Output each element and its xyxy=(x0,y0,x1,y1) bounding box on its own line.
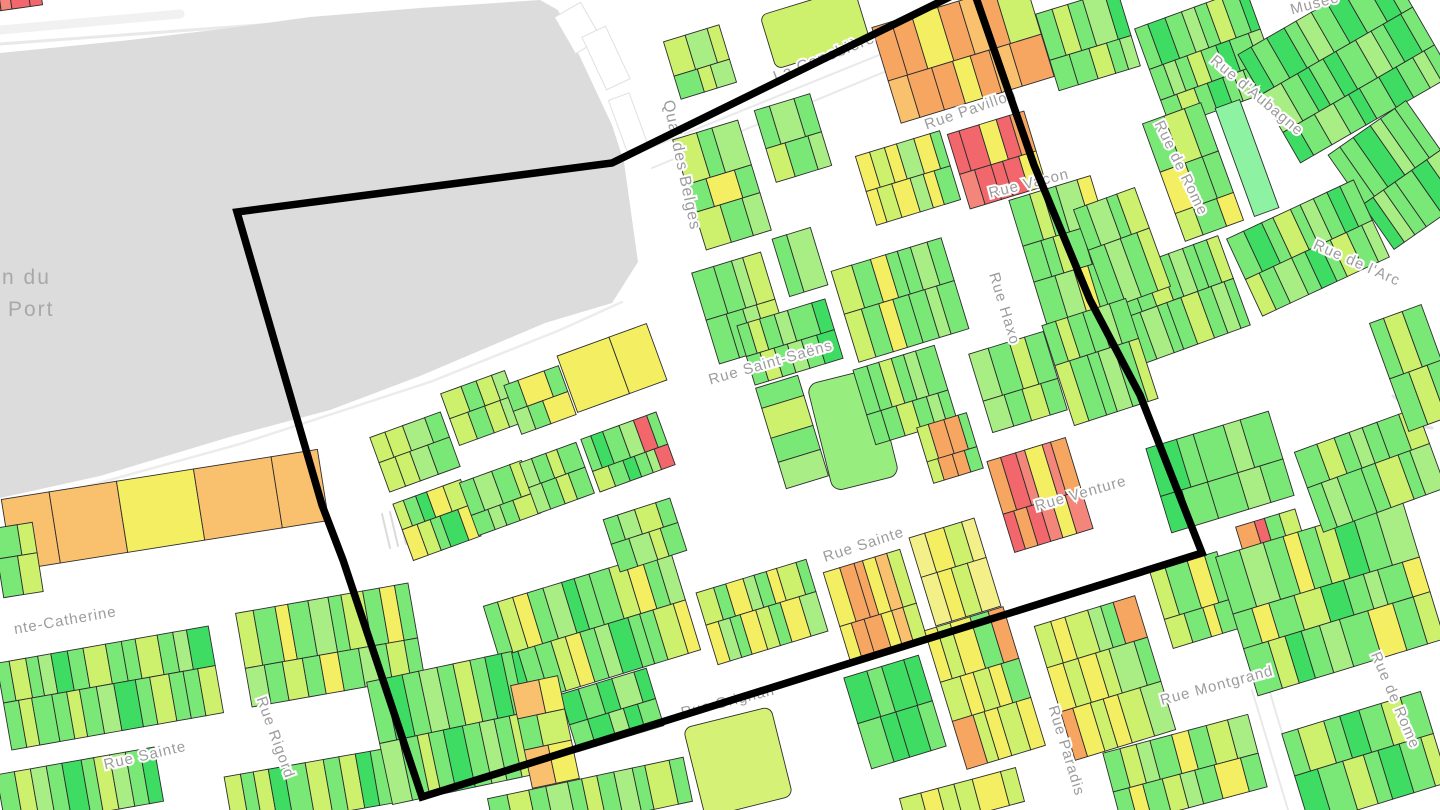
building-parcel xyxy=(29,0,43,6)
water-label: Port xyxy=(8,298,55,321)
building-parcel xyxy=(0,0,12,11)
map-canvas[interactable]: n duPortLa CanebièreQuai des BelgesRue P… xyxy=(0,0,1440,810)
map-viewport[interactable]: n duPortLa CanebièreQuai des BelgesRue P… xyxy=(0,0,1440,810)
water-label: n du xyxy=(2,266,51,289)
building-parcel xyxy=(49,481,128,563)
building-parcel xyxy=(193,457,282,540)
building-parcel xyxy=(116,469,204,552)
building-parcel xyxy=(537,709,571,746)
